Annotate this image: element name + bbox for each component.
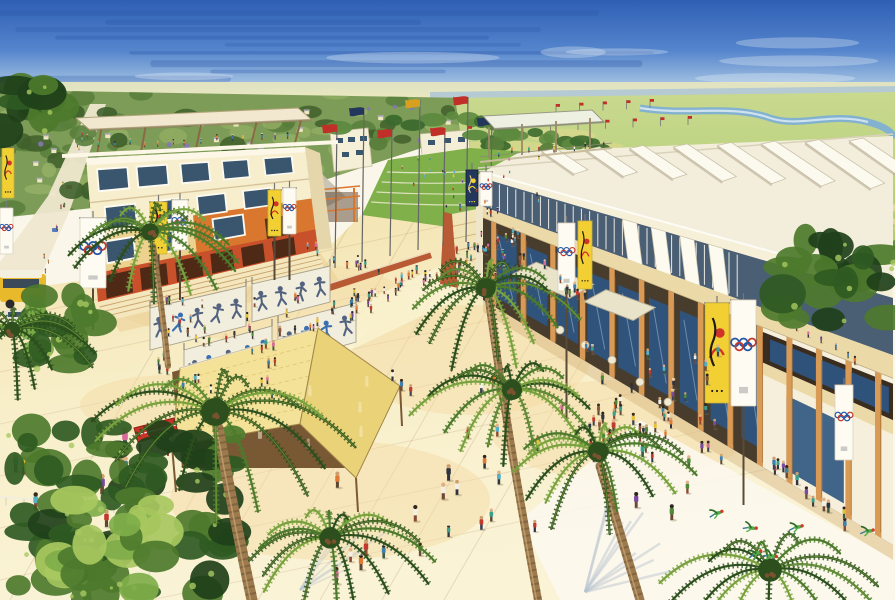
foliage-highlight	[194, 467, 200, 473]
red-flag	[688, 116, 692, 119]
banner-emblem	[739, 387, 748, 393]
foliage-highlight	[842, 319, 847, 324]
coconuts	[765, 573, 770, 578]
red-flag	[468, 126, 472, 129]
coconuts	[482, 289, 487, 294]
person	[446, 204, 447, 208]
cloud	[541, 46, 606, 57]
cloud-streak	[0, 10, 599, 16]
small-window	[348, 137, 355, 142]
person	[442, 169, 443, 172]
distant-roof	[304, 109, 310, 111]
tree-blob	[369, 136, 387, 150]
column	[757, 325, 763, 467]
jacaranda	[167, 142, 172, 147]
foliage-blob	[28, 75, 58, 95]
person	[484, 200, 485, 204]
cafe-table	[608, 356, 616, 364]
banner-dot	[161, 247, 163, 249]
cloud	[736, 37, 860, 48]
street-tree	[110, 133, 128, 148]
banner-dot	[158, 247, 160, 249]
person	[509, 157, 510, 161]
cafe-table	[636, 378, 644, 386]
window	[181, 163, 209, 182]
banner-cloth	[268, 190, 281, 236]
foliage-highlight	[42, 128, 48, 134]
foliage-blob	[138, 495, 174, 516]
window	[98, 168, 128, 190]
foliage-blob	[759, 274, 805, 313]
banner-motif	[7, 161, 12, 166]
coconuts	[152, 233, 157, 238]
banner-dot	[5, 191, 6, 192]
person	[403, 193, 404, 196]
foliage-blob	[86, 441, 133, 457]
person	[429, 168, 430, 172]
person	[444, 172, 445, 175]
person	[424, 173, 426, 177]
red-flag	[606, 120, 610, 123]
tree-blob	[400, 119, 425, 130]
foliage-blob	[814, 269, 854, 286]
coconuts	[507, 390, 512, 395]
banner-dot	[276, 230, 277, 231]
person	[503, 174, 504, 178]
person	[454, 169, 455, 173]
banner-emblem	[841, 447, 847, 452]
foliage-blob	[18, 433, 38, 452]
person	[476, 189, 477, 192]
foliage-highlight	[88, 310, 92, 314]
foliage-blob	[21, 284, 58, 308]
small-window	[342, 152, 349, 157]
person	[452, 186, 453, 190]
cloud-streak	[15, 27, 541, 32]
banner-dot	[471, 201, 472, 202]
olympic-plaza-watercolor	[0, 0, 895, 600]
foliage-highlight	[80, 590, 86, 596]
distant-house	[446, 121, 451, 125]
foliage-highlight	[48, 110, 53, 115]
foliage-highlight	[83, 301, 89, 307]
column	[816, 348, 822, 502]
distant-house	[43, 136, 48, 140]
crown-core	[201, 398, 229, 426]
foliage-highlight	[791, 303, 798, 310]
foliage-blob	[72, 525, 106, 565]
banner-motif	[584, 239, 590, 245]
jacaranda	[367, 107, 371, 111]
bus-roof	[0, 270, 42, 278]
foliage-highlight	[208, 571, 214, 577]
foliage-blob	[109, 513, 141, 537]
coconuts	[9, 333, 14, 338]
tree-blob	[393, 135, 411, 144]
banner-emblem	[4, 246, 9, 249]
person	[417, 157, 419, 161]
tree-blob	[42, 163, 56, 178]
coconuts	[148, 231, 153, 236]
foliage-highlight	[24, 552, 29, 557]
distant-roof	[378, 115, 384, 117]
red-flag	[661, 117, 665, 120]
person	[453, 195, 454, 198]
cafe-table	[664, 398, 672, 406]
foliage-highlight	[70, 594, 74, 598]
cloud-streak	[55, 35, 489, 39]
banner-dot	[474, 201, 475, 202]
banner-motif	[715, 328, 725, 338]
foliage-highlight	[27, 90, 32, 95]
banner-dot	[7, 191, 8, 192]
distant-roof	[51, 148, 57, 150]
banner-dot	[582, 280, 583, 281]
foliage-highlight	[83, 496, 88, 501]
distant-roof	[33, 161, 39, 163]
foliage-highlight	[89, 538, 94, 543]
distant-roof	[37, 178, 43, 180]
banner-cloth	[466, 170, 478, 206]
banner-olympic-rings	[0, 201, 14, 254]
cloud-streak	[210, 70, 446, 74]
person	[509, 170, 510, 173]
banner-emblem	[88, 275, 97, 279]
tree-blob	[385, 115, 403, 126]
foliage-highlight	[65, 512, 70, 517]
banner-cloth	[2, 148, 14, 198]
coconuts	[215, 415, 220, 420]
distant-house	[105, 135, 110, 139]
foliage-blob	[190, 560, 229, 599]
banner-dot	[10, 191, 11, 192]
cloud-streak	[225, 43, 521, 47]
backlit-figure	[308, 385, 311, 396]
foliage-highlight	[6, 433, 11, 438]
foliage-highlight	[110, 586, 113, 589]
banner-emblem	[563, 279, 569, 283]
distant-house	[378, 117, 383, 121]
foliage-blob	[811, 308, 845, 332]
coconuts	[597, 455, 602, 460]
coconuts	[511, 391, 516, 396]
banner-motif	[471, 178, 476, 183]
red-flag	[603, 102, 607, 105]
banner-festival	[1, 141, 15, 198]
jacaranda	[393, 105, 397, 109]
coconuts	[326, 540, 331, 545]
person	[402, 166, 403, 169]
distant-roof	[43, 135, 49, 137]
column	[698, 302, 704, 432]
cloud	[326, 52, 500, 64]
person	[488, 178, 489, 182]
crown-core	[758, 558, 782, 582]
tree-blob	[462, 130, 488, 141]
distant-roof	[105, 133, 111, 135]
banner-festival	[577, 214, 593, 289]
jacaranda	[38, 141, 43, 146]
distant-house	[33, 162, 38, 166]
foliage-highlight	[782, 262, 788, 268]
foliage-blob	[6, 575, 31, 595]
foliage-highlight	[43, 85, 47, 89]
banner-festival	[465, 163, 479, 206]
banner-dot	[469, 201, 470, 202]
foliage-highlight	[847, 286, 853, 292]
foliage-highlight	[34, 365, 41, 372]
rendered-illustration	[0, 0, 895, 600]
foliage-highlight	[117, 581, 123, 587]
foliage-highlight	[835, 255, 842, 262]
foliage-highlight	[189, 583, 196, 590]
column	[786, 337, 792, 485]
red-flag	[580, 103, 584, 106]
red-flag	[556, 104, 560, 107]
window	[265, 157, 293, 174]
foliage-blob	[852, 245, 874, 269]
tree-row-blob	[446, 111, 458, 120]
banner-dot	[271, 230, 272, 231]
person	[536, 192, 538, 196]
cloud	[719, 55, 878, 66]
backlit-figure	[358, 402, 361, 413]
window	[138, 166, 168, 187]
banner-emblem	[287, 226, 292, 229]
foliage-highlight	[47, 352, 52, 357]
person	[538, 199, 539, 202]
banner-cloth	[578, 221, 592, 289]
distant-house	[37, 179, 42, 183]
crown-core	[320, 528, 341, 549]
red-flag	[650, 99, 654, 102]
banner-dot	[274, 230, 275, 231]
foliage-highlight	[77, 300, 84, 307]
person	[429, 156, 430, 160]
banner-dot	[716, 390, 718, 392]
banner-dot	[721, 390, 723, 392]
banner-dot	[587, 280, 588, 281]
foliage-highlight	[843, 243, 847, 247]
foliage-highlight	[195, 479, 200, 484]
foliage-highlight	[889, 266, 894, 271]
distant-house	[51, 150, 56, 154]
backlit-figure	[365, 376, 368, 387]
person	[462, 179, 463, 183]
foliage-highlight	[69, 443, 75, 449]
foliage-blob	[52, 421, 80, 442]
banner-motif	[273, 201, 278, 206]
banner-dot	[584, 280, 585, 281]
small-window	[428, 140, 435, 145]
foliage-highlight	[84, 539, 87, 542]
person	[413, 183, 414, 186]
coconuts	[332, 539, 337, 544]
backlit-figure	[359, 426, 362, 437]
cloud	[135, 73, 234, 81]
person	[453, 173, 455, 177]
window	[223, 160, 249, 178]
small-window	[356, 150, 363, 155]
foliage-blob	[866, 272, 895, 291]
coconuts	[771, 573, 776, 578]
person	[538, 156, 539, 160]
banner-olympic-rings	[834, 378, 854, 460]
bus-wheel	[6, 300, 15, 309]
cloud-streak	[105, 20, 421, 25]
foliage-highlight	[98, 506, 104, 512]
banner-dot	[711, 390, 713, 392]
red-flag	[627, 100, 631, 103]
red-flag	[633, 119, 637, 122]
foliage-blob	[50, 486, 98, 515]
